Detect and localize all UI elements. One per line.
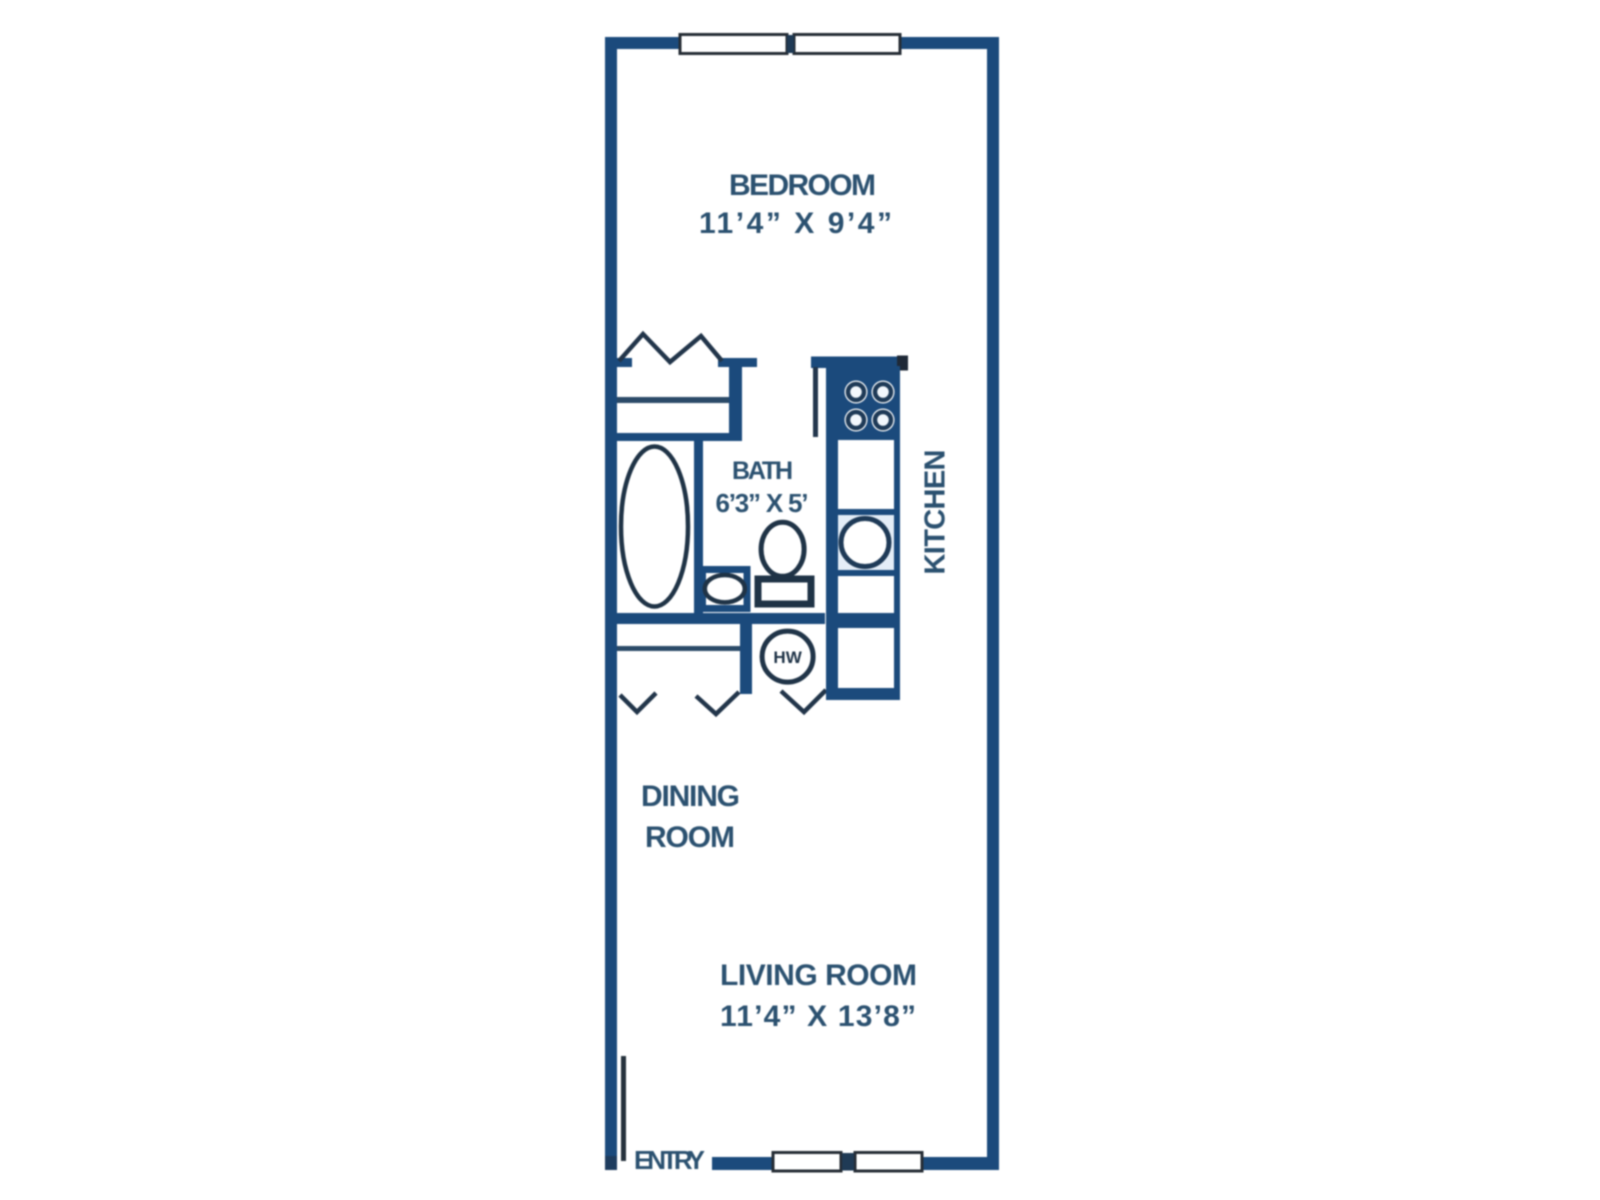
svg-text:ENTRY: ENTRY [634, 1145, 705, 1175]
svg-text:ROOM: ROOM [645, 821, 735, 854]
svg-text:BATH: BATH [732, 457, 793, 485]
svg-text:11’4” X 13’8”: 11’4” X 13’8” [720, 1000, 916, 1033]
svg-text:DINING: DINING [641, 780, 740, 813]
svg-text:KITCHEN: KITCHEN [920, 450, 952, 575]
svg-text:LIVING ROOM: LIVING ROOM [720, 959, 917, 992]
svg-text:HW: HW [773, 648, 802, 667]
svg-text:BEDROOM: BEDROOM [729, 169, 876, 202]
svg-text:6’3” X 5’: 6’3” X 5’ [716, 488, 809, 518]
svg-text:11’4” X 9’4”: 11’4” X 9’4” [699, 207, 892, 240]
